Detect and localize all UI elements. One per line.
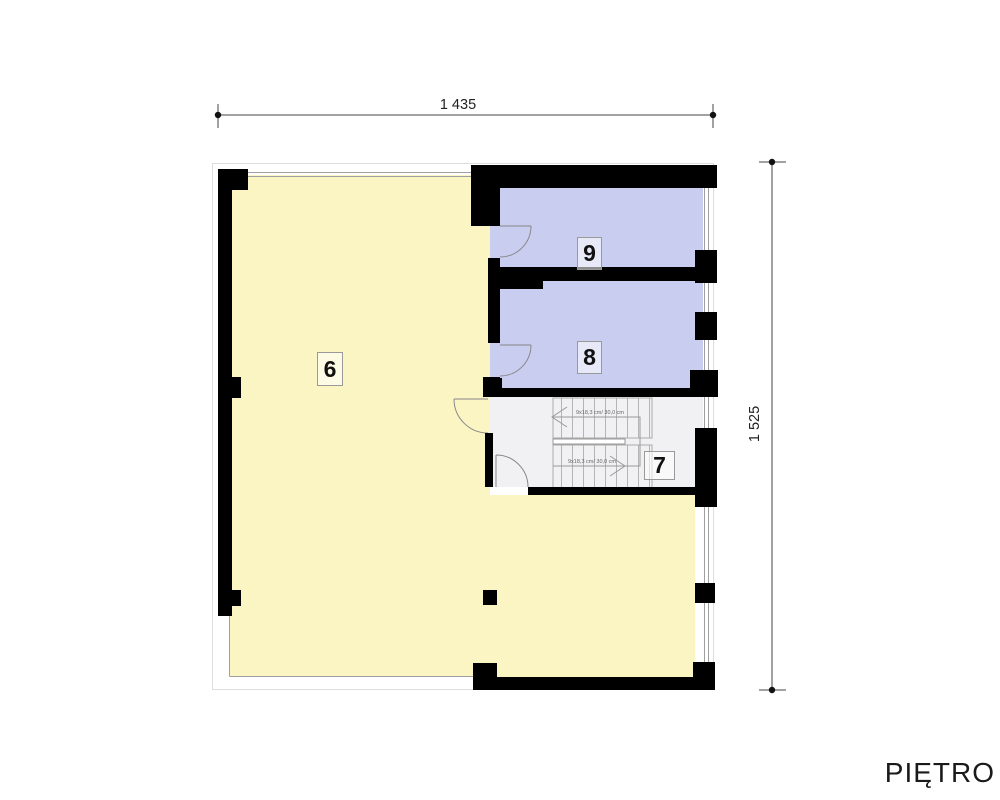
wall-pillar-right-lower bbox=[695, 583, 715, 603]
room-label-6: 6 bbox=[317, 352, 343, 386]
wall-room8-bottom bbox=[483, 388, 718, 397]
wall-bottom-right-corner bbox=[693, 662, 715, 690]
room-number-7: 7 bbox=[653, 454, 666, 477]
wall-between-9-8-stub bbox=[498, 281, 543, 289]
room-label-7: 7 bbox=[644, 451, 675, 480]
wall-room8-bottom-right-pillar bbox=[690, 370, 718, 397]
room-number-9: 9 bbox=[583, 242, 596, 265]
dimension-right-value: 1 525 bbox=[747, 406, 763, 442]
room-number-8: 8 bbox=[583, 346, 596, 369]
wall-stairwell-left bbox=[485, 433, 493, 487]
wall-bottom bbox=[497, 677, 715, 690]
door-room6 bbox=[454, 399, 488, 433]
wall-topleft-corner bbox=[218, 169, 248, 190]
room-label-9: 9 bbox=[577, 237, 602, 270]
wall-pillar-left-mid bbox=[232, 377, 241, 398]
wall-pillar-left-low bbox=[232, 590, 241, 606]
wall-stairwell-right-pillar bbox=[695, 428, 717, 507]
wall-stairwell-bottom bbox=[528, 487, 713, 495]
stair-annotation-upper: 9x18,3 cm/ 30,0 cm bbox=[576, 410, 624, 416]
wall-top-right-section bbox=[471, 165, 717, 188]
wall-free-pillar bbox=[483, 590, 497, 605]
wall-room8-bottom-left-pillar bbox=[483, 378, 502, 397]
dim-dot bbox=[769, 159, 775, 165]
stair-annotation-lower: 9x18,3 cm/ 30,0 cm bbox=[568, 459, 616, 465]
room-label-8: 8 bbox=[577, 341, 602, 374]
wall-pillar-right-98 bbox=[695, 250, 717, 283]
floor-plan: 9x18,3 cm/ 30,0 cm 9x18,3 cm/ 30,0 cm 1 … bbox=[0, 0, 1000, 800]
dimension-top-value: 1 435 bbox=[440, 97, 476, 113]
door-room8 bbox=[500, 345, 531, 376]
staircase: 9x18,3 cm/ 30,0 cm 9x18,3 cm/ 30,0 cm bbox=[552, 398, 652, 488]
dim-dot bbox=[215, 112, 221, 118]
wall-pillar-right-room8 bbox=[695, 312, 717, 340]
wall-room9-left-upper bbox=[471, 165, 500, 226]
wall-left bbox=[218, 169, 232, 616]
dim-dot bbox=[710, 112, 716, 118]
wall-bottom-left-pillar bbox=[473, 663, 497, 690]
door-room9 bbox=[500, 226, 531, 257]
stair-handrail bbox=[553, 439, 625, 444]
door-stairwell bbox=[496, 455, 528, 487]
stair-flight-upper bbox=[553, 398, 652, 438]
dim-dot bbox=[769, 687, 775, 693]
room-number-6: 6 bbox=[324, 358, 337, 381]
dimension-right bbox=[759, 159, 786, 693]
drawing-title: PIĘTRO bbox=[880, 757, 995, 791]
